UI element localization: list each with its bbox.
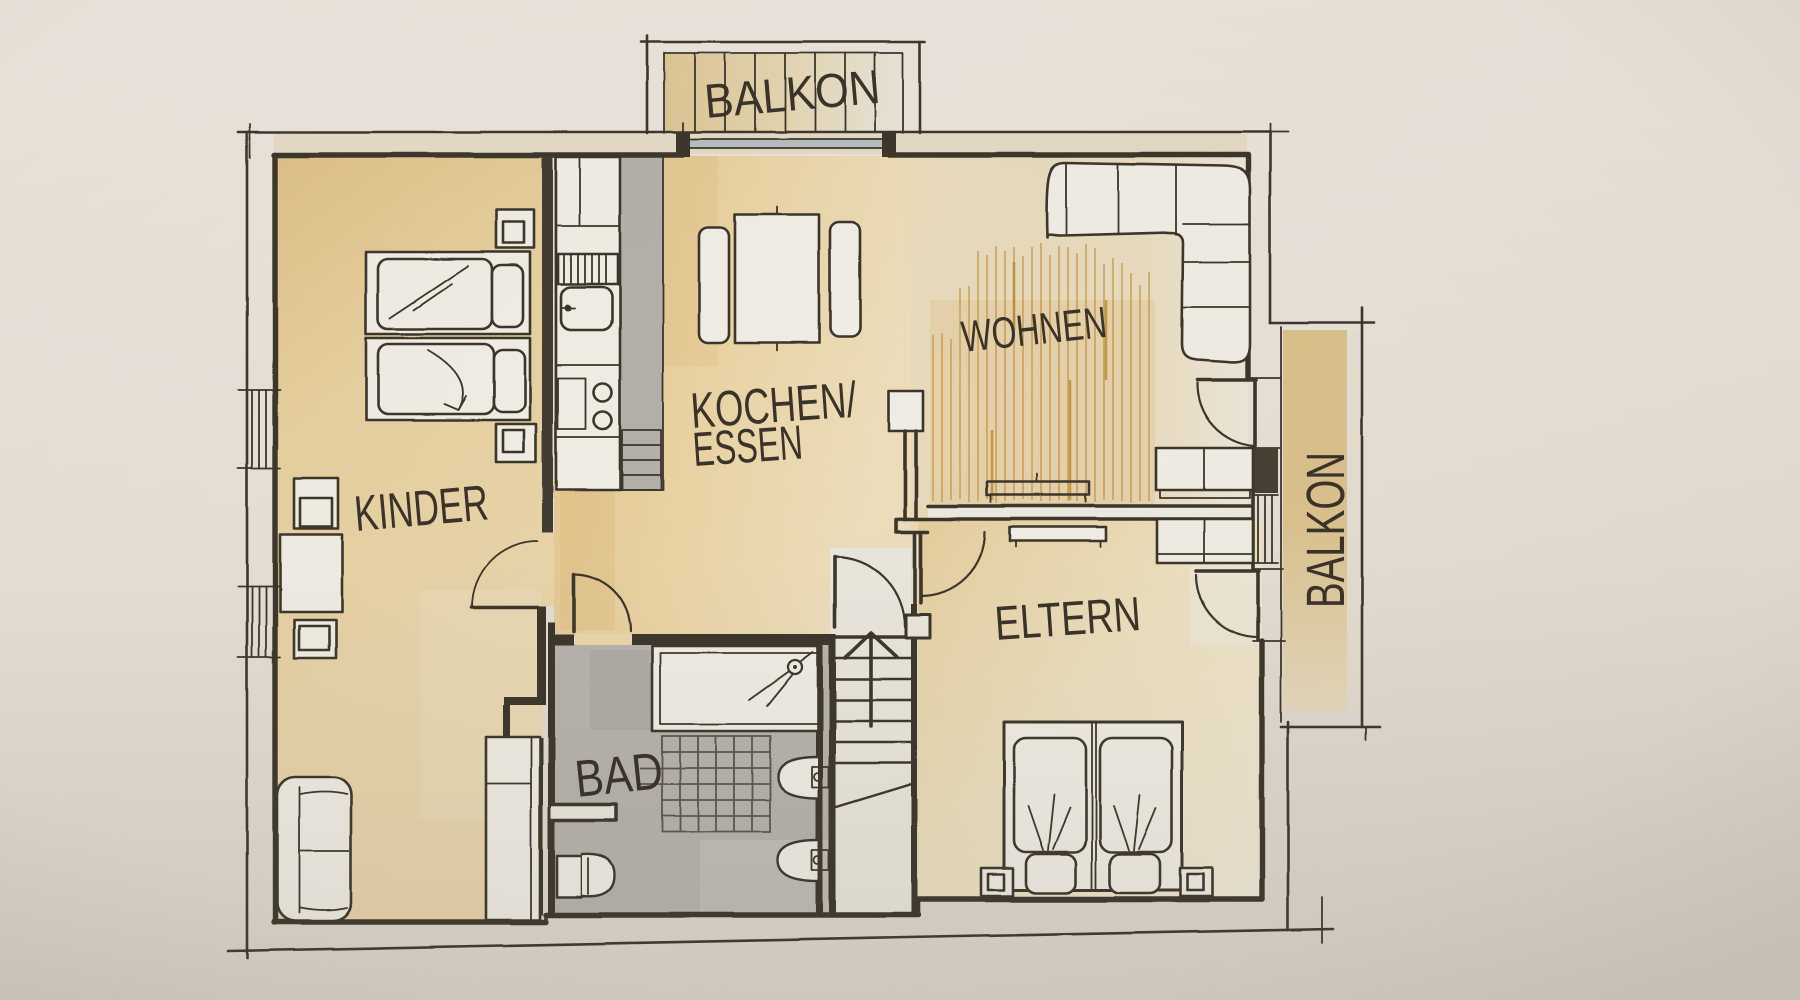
svg-text:BALKON: BALKON (1296, 452, 1356, 608)
svg-text:KINDER: KINDER (352, 474, 490, 541)
svg-text:ELTERN: ELTERN (993, 588, 1142, 651)
svg-text:BAD: BAD (572, 742, 666, 809)
svg-text:ESSEN: ESSEN (691, 416, 804, 477)
